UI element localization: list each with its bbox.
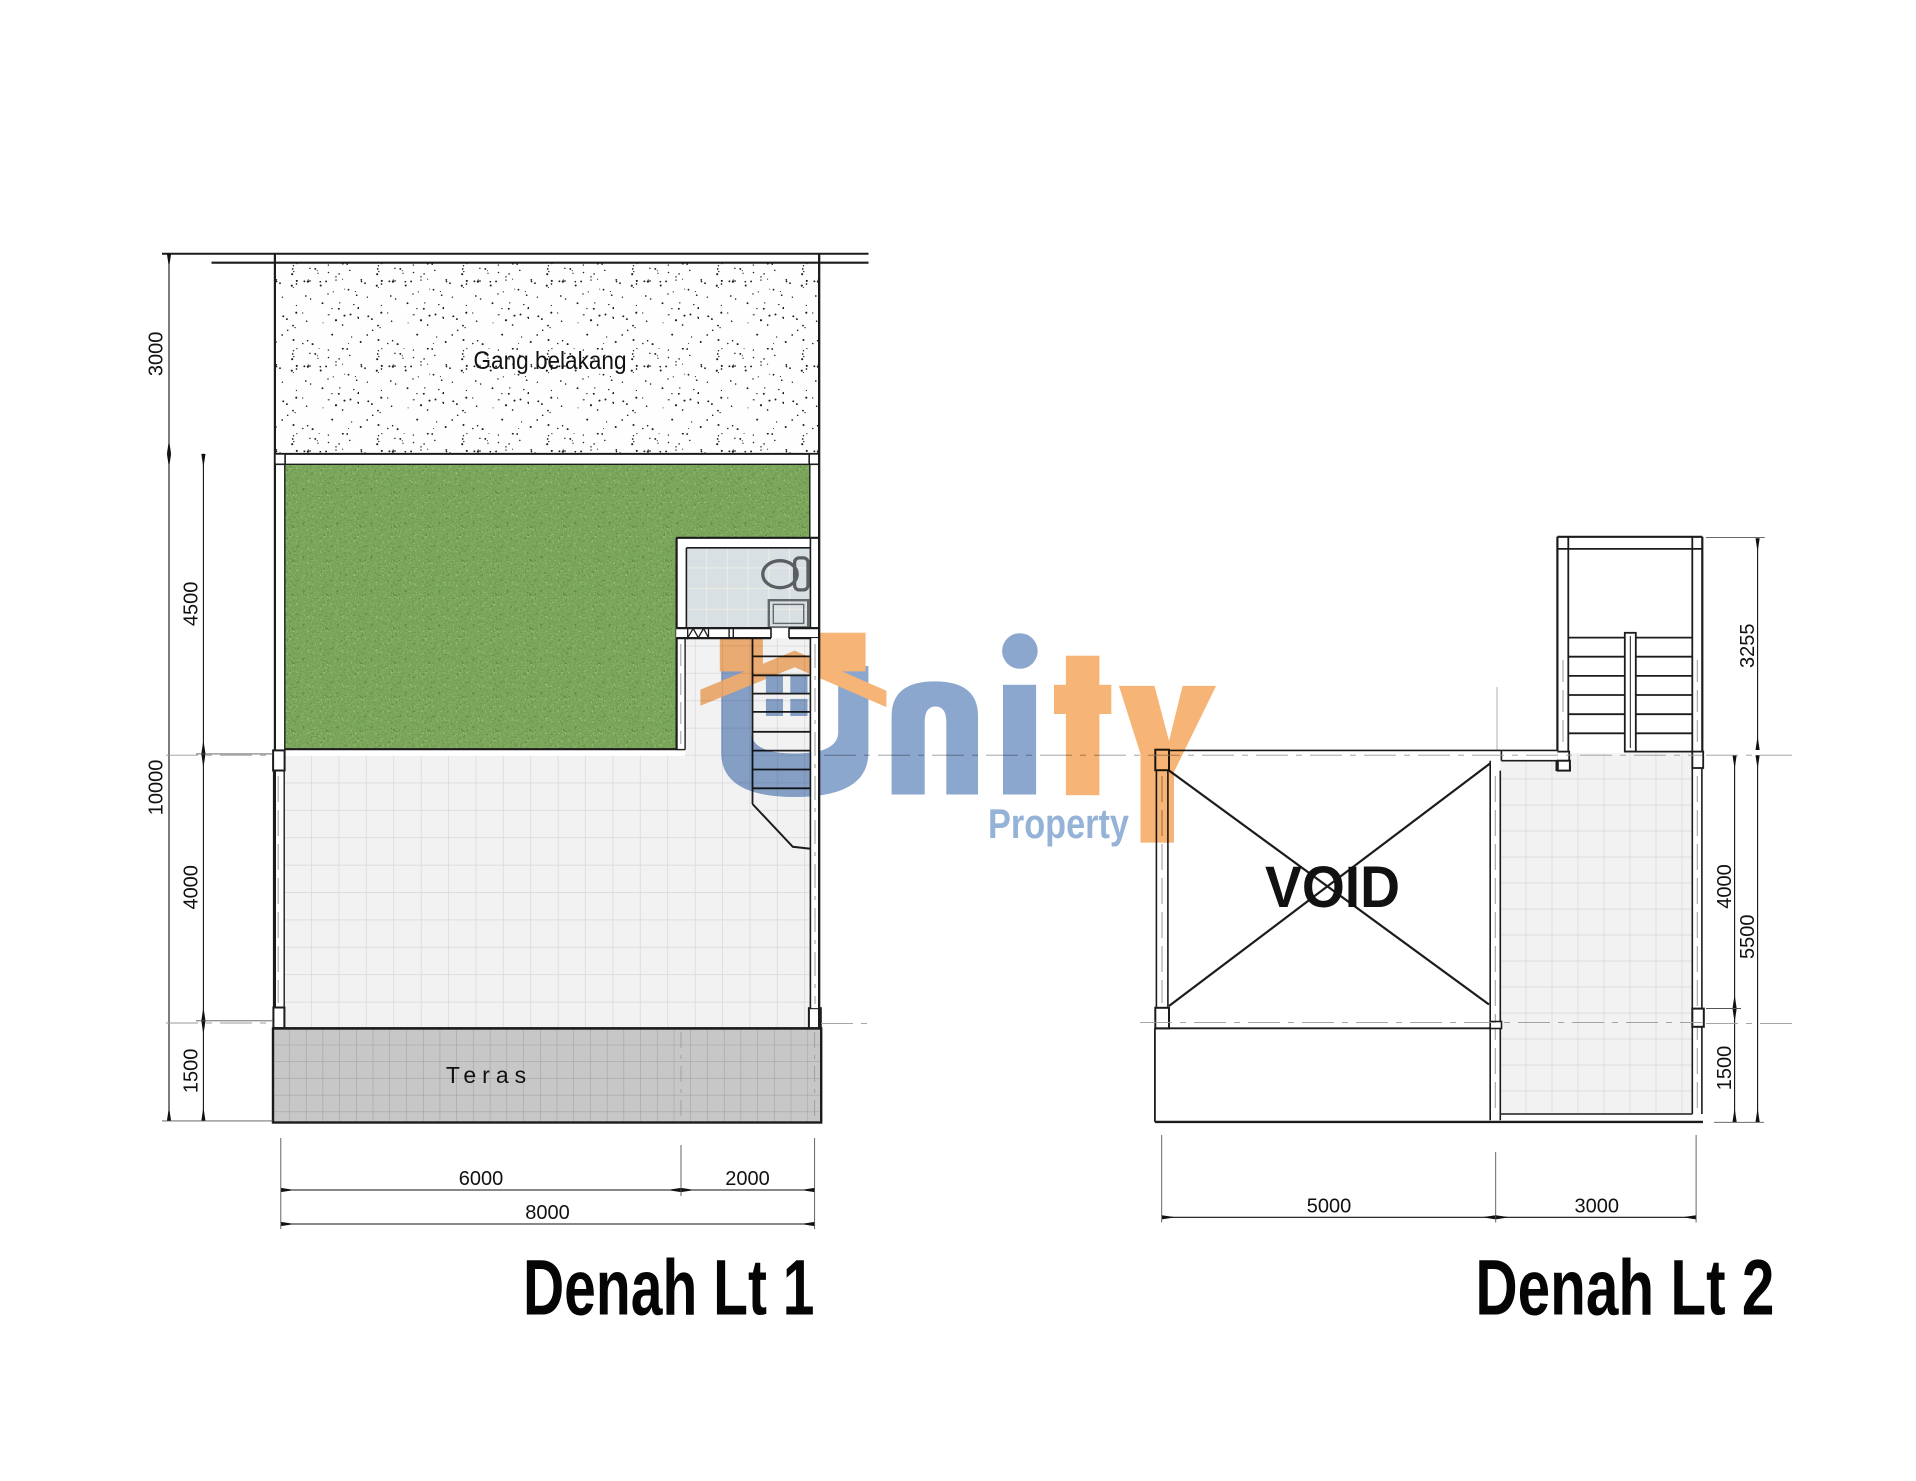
svg-text:Denah Lt 2: Denah Lt 2 bbox=[1475, 1243, 1774, 1332]
svg-text:3255: 3255 bbox=[1737, 623, 1759, 668]
svg-text:Teras: Teras bbox=[446, 1062, 532, 1088]
svg-text:5500: 5500 bbox=[1737, 914, 1759, 959]
svg-text:3000: 3000 bbox=[146, 332, 168, 377]
svg-text:Property: Property bbox=[988, 800, 1130, 847]
svg-text:2000: 2000 bbox=[725, 1168, 770, 1190]
svg-text:5000: 5000 bbox=[1307, 1196, 1352, 1218]
svg-text:4500: 4500 bbox=[180, 582, 202, 627]
svg-text:Denah Lt 1: Denah Lt 1 bbox=[523, 1243, 815, 1332]
svg-text:4000: 4000 bbox=[1714, 864, 1736, 909]
svg-text:4000: 4000 bbox=[180, 865, 202, 910]
svg-text:VOID: VOID bbox=[1265, 855, 1400, 920]
svg-text:3000: 3000 bbox=[1575, 1196, 1620, 1218]
svg-text:Gang belakang: Gang belakang bbox=[474, 347, 627, 375]
svg-text:1500: 1500 bbox=[1714, 1046, 1736, 1091]
svg-text:10000: 10000 bbox=[146, 760, 168, 816]
svg-text:1500: 1500 bbox=[180, 1049, 202, 1094]
svg-text:8000: 8000 bbox=[525, 1202, 570, 1224]
svg-text:6000: 6000 bbox=[459, 1168, 504, 1190]
